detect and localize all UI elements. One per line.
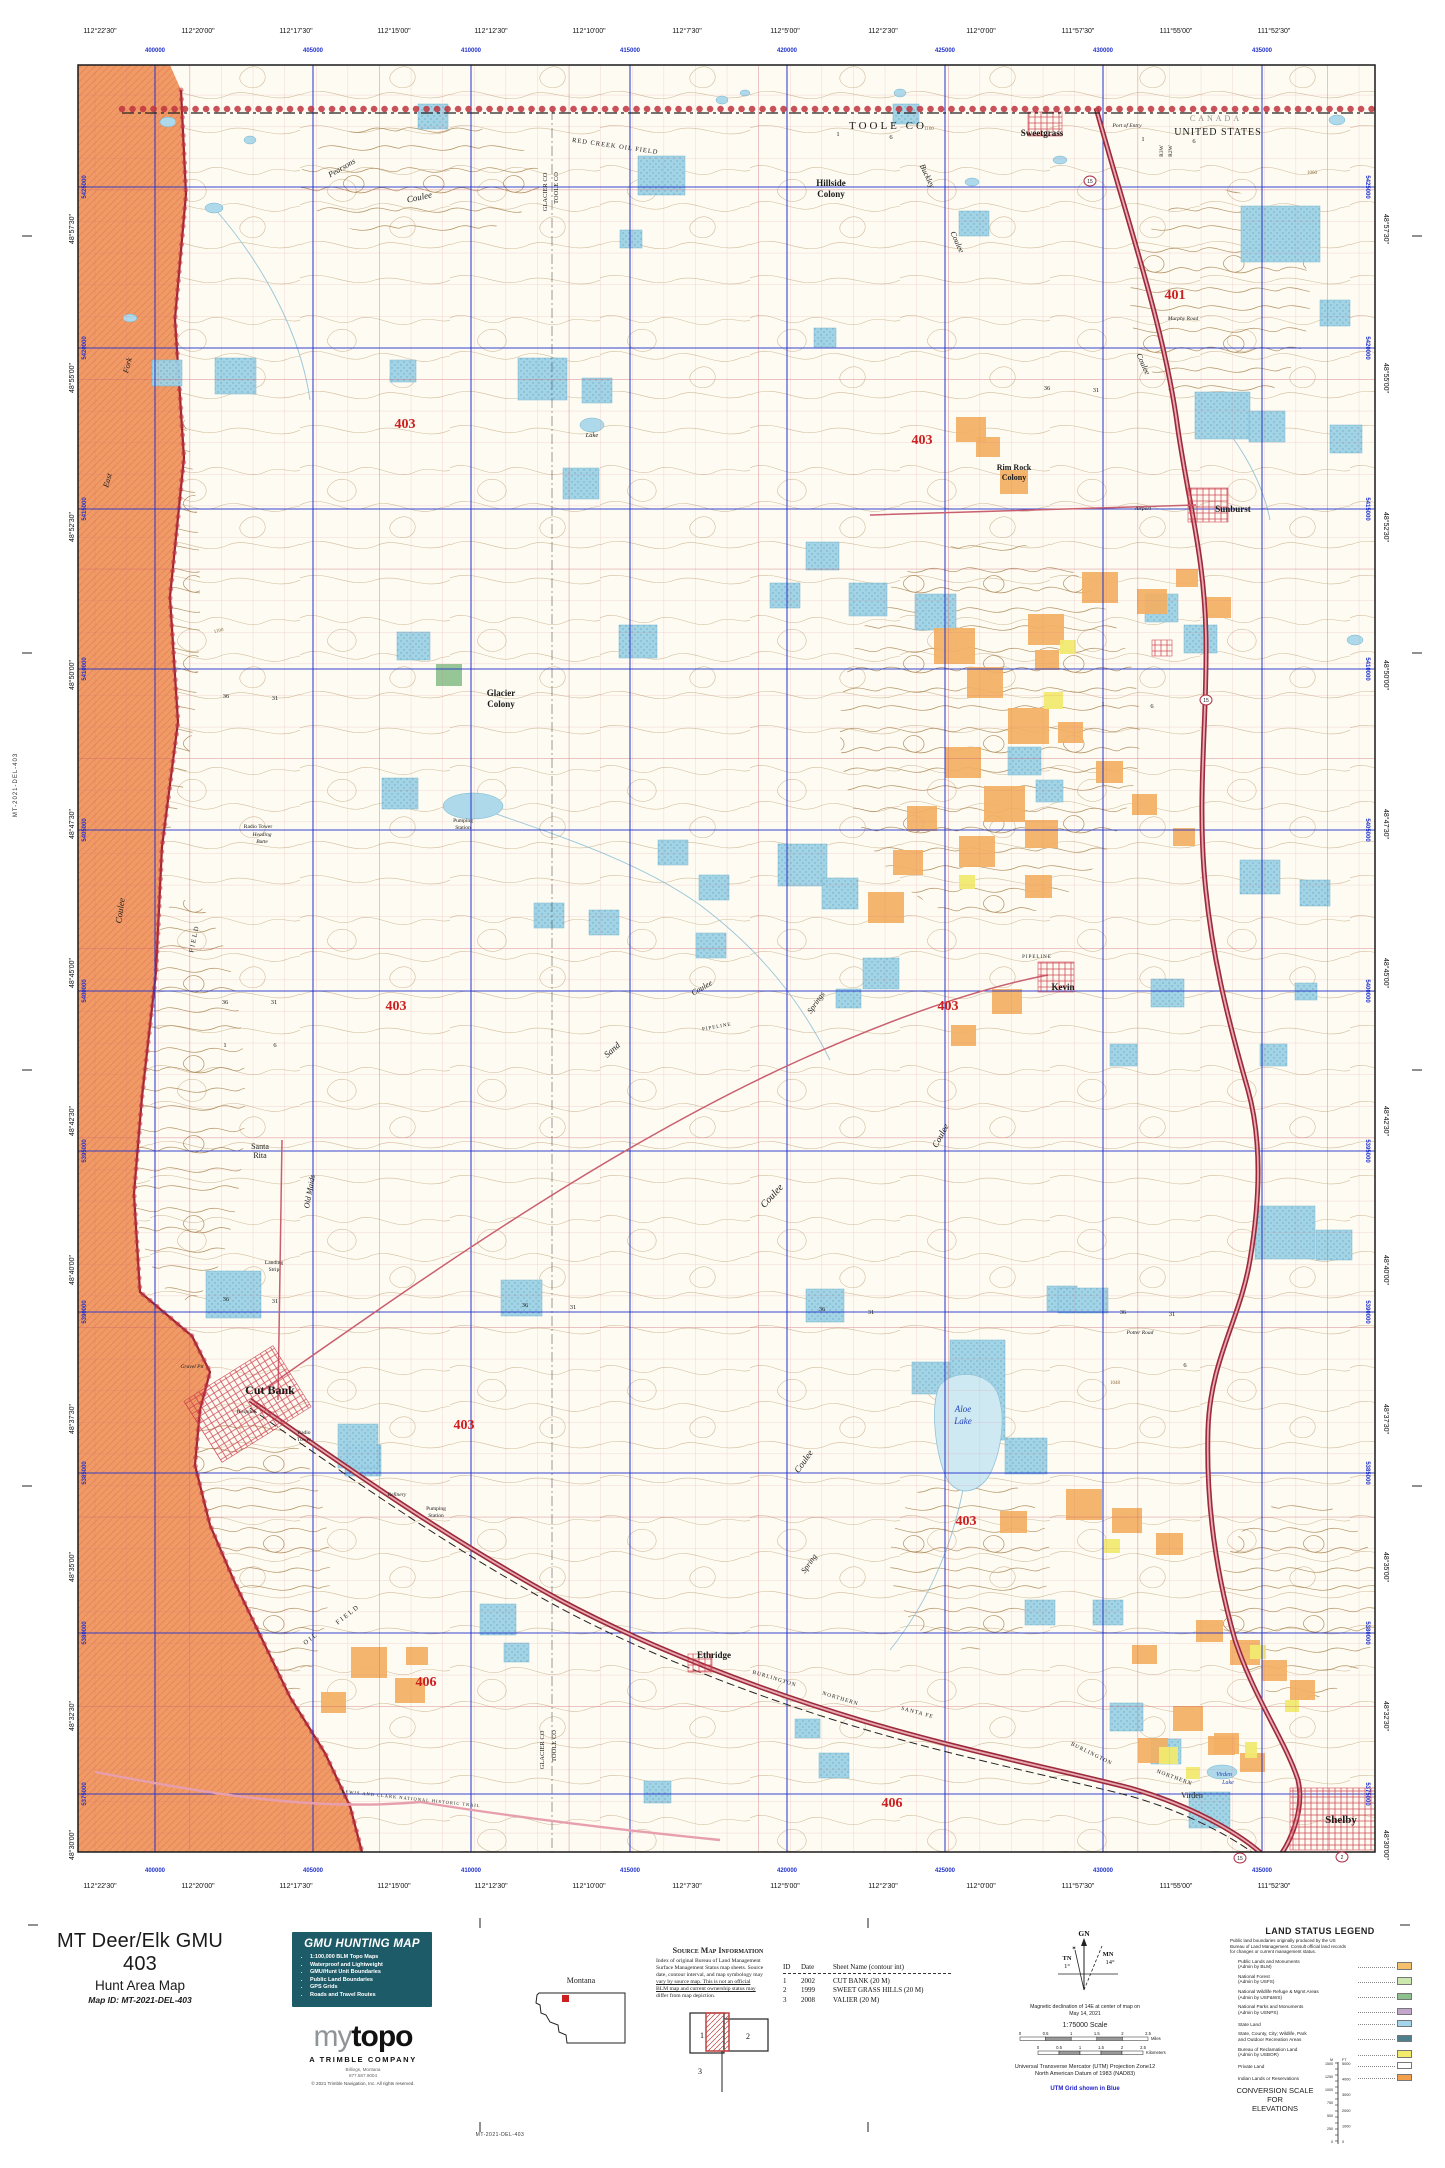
utm-northing-label-right: 5375000 [1364, 1782, 1370, 1806]
svg-text:GN: GN [1078, 1929, 1090, 1938]
sheet-table-row: 12002CUT BANK (20 M) [783, 1977, 951, 1987]
map-label: 1100 [924, 127, 934, 132]
latitude-label-right: 48°47'30" [1382, 809, 1390, 839]
elevation-conversion-ruler: 1500125010007505002500500040003000200010… [1316, 2058, 1370, 2150]
latitude-label-right: 48°30'00" [1382, 1830, 1390, 1860]
utm-northing-label-left: 5415000 [82, 497, 88, 521]
km-bar-tick: 1 [1079, 2045, 1082, 2050]
map-label: 1 [1101, 701, 1104, 708]
gmu-panel-heading: GMU HUNTING MAP [300, 1938, 424, 1950]
longitude-label-bottom: 112°0'00" [966, 1882, 996, 1890]
utm-northing-label-left: 5395000 [82, 1139, 88, 1163]
source-info-heading: Source Map Information [656, 1946, 780, 1955]
map-label: Rim Rock [997, 463, 1032, 472]
montana-inset: Montana [531, 1976, 631, 2052]
latitude-label-right: 48°40'00" [1382, 1255, 1390, 1285]
township-grid [78, 65, 1375, 1852]
map-label: Potter Road [1126, 1330, 1154, 1336]
conversion-left-label: 750 [1327, 2101, 1333, 2105]
map-label: Airport [1134, 506, 1152, 512]
map-label: Sunburst [1215, 504, 1251, 514]
map-label: Station [455, 825, 471, 831]
km-bar-tick: 2 [1121, 2045, 1124, 2050]
highway-shield-icon: 15 [1200, 695, 1212, 705]
map-label: R3W [1159, 144, 1165, 156]
svg-text:2: 2 [746, 2032, 750, 2041]
map-label: TOOLE CO [551, 1730, 558, 1762]
longitude-label-top: 112°20'00" [181, 27, 215, 35]
latitude-label-right: 48°50'00" [1382, 660, 1390, 690]
gmu-unit-number: 403 [395, 417, 416, 432]
longitude-label-bottom: 112°20'00" [181, 1882, 215, 1890]
sheet-table-col-id: ID [783, 1963, 801, 1973]
latitude-label-left: 48°45'00" [68, 957, 76, 987]
map-label: Glacier [487, 688, 516, 698]
longitude-label-bottom: 112°2'30" [868, 1882, 898, 1890]
source-info-line: Surface Management Status map sheets. So… [656, 1965, 780, 1972]
map-label: Cut Bank [245, 1383, 295, 1397]
conversion-left-unit: M [1330, 2058, 1333, 2062]
legend-item-label: State, County, City; Wildlife, Parkand O… [1238, 2031, 1356, 2042]
map-label: Lake [1221, 1780, 1234, 1786]
map-label: Station [428, 1513, 444, 1519]
utm-easting-label-top: 405000 [303, 48, 324, 54]
map-label: Radio Tower [244, 824, 273, 830]
longitude-label-bottom: 112°7'30" [672, 1882, 702, 1890]
utm-easting-label-bottom: 415000 [620, 1868, 641, 1874]
map-label: PIPELINE [1022, 955, 1052, 960]
map-label: TOOLE CO [849, 120, 927, 132]
conversion-left-label: 250 [1327, 2127, 1333, 2131]
title-block: MT Deer/Elk GMU 403 Hunt Area Map Map ID… [45, 1930, 235, 2005]
page-title: MT Deer/Elk GMU 403 [45, 1930, 235, 1976]
map-label: Virden [1216, 1772, 1232, 1778]
legend-swatch [1397, 1993, 1412, 2001]
sheet-table-col-name: Sheet Name (contour int) [833, 1963, 951, 1973]
longitude-label-bottom: 111°52'30" [1258, 1882, 1291, 1890]
miles-bar-tick: 1 [1070, 2031, 1073, 2036]
utm-easting-label-bottom: 400000 [145, 1868, 166, 1874]
map-label: 36 [1044, 385, 1051, 392]
latitude-label-right: 48°35'00" [1382, 1552, 1390, 1582]
conversion-right-label: 0 [1342, 2140, 1344, 2144]
utm-northing-label-right: 5415000 [1364, 497, 1370, 521]
latitude-label-left: 48°30'00" [68, 1829, 76, 1859]
gmu-hunting-map-panel: GMU HUNTING MAP 1:100,000 BLM Topo MapsW… [292, 1932, 432, 2007]
map-label: Landing [265, 1260, 284, 1266]
latitude-label-left: 48°57'30" [68, 213, 76, 243]
map-label: CANADA [1190, 114, 1242, 123]
svg-text:2: 2 [1341, 1855, 1344, 1861]
map-label: 1 [223, 1042, 226, 1049]
logo-topo: topo [352, 2020, 413, 2053]
utm-grid-note: UTM Grid shown in Blue [1003, 2086, 1167, 2092]
map-label: 36 [223, 693, 230, 700]
sheet-table-row: 21999SWEET GRASS HILLS (20 M) [783, 1986, 951, 1996]
gmu-unit-number: 403 [956, 1514, 977, 1529]
legend-item: Bureau of Reclamation Land(Admin by USBO… [1238, 2047, 1412, 2058]
map-label: 31 [570, 1304, 577, 1311]
latitude-label-left: 48°52'30" [68, 511, 76, 541]
declination-compass-icon: ✶ GN TN 1° MN 14° [1040, 1928, 1135, 2006]
map-label: 31 [868, 1309, 875, 1316]
conversion-right-label: 1000 [1342, 2124, 1350, 2128]
legend-swatch [1397, 1962, 1412, 1970]
utm-northing-label-left: 5410000 [82, 657, 88, 681]
gmu-panel-bullet-list: 1:100,000 BLM Topo MapsWaterproof and Li… [300, 1954, 424, 2000]
utm-northing-label-left: 5380000 [82, 1621, 88, 1645]
legend-item-label: Public Lands and Monuments(Admin by BLM) [1238, 1959, 1356, 1970]
longitude-label-top: 112°15'00" [377, 27, 411, 35]
legend-item: State Land [1238, 2020, 1412, 2028]
gmu-unit-number: 403 [938, 999, 959, 1014]
map-label: Colony [1002, 473, 1026, 482]
legend-item-label: National Parks and Monuments(Admin by US… [1238, 2004, 1356, 2015]
svg-text:✶: ✶ [1071, 1945, 1076, 1952]
map-label: 31 [272, 695, 279, 702]
latitude-label-left: 48°50'00" [68, 659, 76, 689]
svg-text:1: 1 [700, 2031, 704, 2040]
map-label: Radio [297, 1430, 310, 1436]
mytopo-copyright: © 2021 Trimble Navigation, Inc. All righ… [288, 2081, 438, 2086]
map-label: Gravel Pit [180, 1364, 204, 1370]
gmu-panel-bullet: GPS Grids [310, 1984, 424, 1992]
utm-northing-label-right: 5390000 [1364, 1300, 1370, 1324]
map-label: Shelby [1325, 1814, 1357, 1826]
km-bar-segment [1038, 2051, 1059, 2055]
map-label: 31 [1169, 1311, 1176, 1318]
map-label: 36 [222, 999, 229, 1006]
side-map-id: MT-2021-DEL-403 [13, 753, 19, 817]
longitude-label-top: 112°10'00" [572, 27, 606, 35]
map-label: Colony [487, 699, 515, 709]
highway-shield-icon: 2 [1336, 1852, 1348, 1862]
map-label: Tower [297, 1437, 311, 1443]
source-info-line: differ from map depiction. [656, 1993, 780, 2000]
source-info-line: vary by source map. This is not an offic… [656, 1979, 780, 1986]
utm-northing-label-left: 5385000 [82, 1461, 88, 1485]
source-info-text: Index of original Bureau of Land Managem… [656, 1958, 780, 2001]
sheet-table-header: IDDateSheet Name (contour int) [783, 1963, 951, 1974]
utm-northing-label-right: 5425000 [1364, 175, 1370, 199]
miles-bar-unit: Miles [1151, 2036, 1161, 2041]
legend-item: National Forest(Admin by USFS) [1238, 1974, 1412, 1985]
map-label: 1060 [1307, 171, 1318, 176]
longitude-label-bottom: 112°12'30" [474, 1882, 508, 1890]
utm-easting-label-bottom: 420000 [777, 1868, 798, 1874]
highway-shield-icon: 15 [1084, 176, 1096, 186]
map-label: 1 [1141, 136, 1144, 143]
gmu-unit-number: 403 [454, 1418, 475, 1433]
map-label: Lake [953, 1416, 972, 1426]
map-label: Santa [251, 1142, 269, 1151]
map-label: 1 [836, 131, 839, 138]
utm-northing-label-left: 5400000 [82, 979, 88, 1003]
longitude-label-top: 111°52'30" [1258, 27, 1291, 35]
map-sheet-page: TOOLE COCANADAUNITED STATESSweetgrassPor… [0, 0, 1445, 2168]
mytopo-logo: mytopo [288, 2022, 438, 2052]
svg-text:15: 15 [1237, 1856, 1243, 1862]
legend-swatch [1397, 2035, 1412, 2043]
utm-easting-label-bottom: 405000 [303, 1868, 324, 1874]
legend-swatch [1397, 1977, 1412, 1985]
utm-easting-label-top: 425000 [935, 48, 956, 54]
scale-bars: 00.511.522.5Miles 00.511.522.5Kilometers [1012, 2030, 1177, 2060]
km-bar-segment [1059, 2051, 1080, 2055]
utm-easting-label-bottom: 430000 [1093, 1868, 1114, 1874]
latitude-label-right: 48°32'30" [1382, 1701, 1390, 1731]
latitude-label-left: 48°47'30" [68, 808, 76, 838]
latitude-label-left: 48°37'30" [68, 1403, 76, 1433]
legend-item: National Parks and Monuments(Admin by US… [1238, 2004, 1412, 2015]
map-label: GLACIER CO [539, 1730, 546, 1769]
utm-northing-label-left: 5375000 [82, 1782, 88, 1806]
conversion-left-label: 1000 [1325, 2088, 1333, 2092]
conversion-left-label: 1250 [1325, 2075, 1333, 2079]
utm-northing-label-right: 5380000 [1364, 1621, 1370, 1645]
miles-bar-tick: 2 [1121, 2031, 1124, 2036]
latitude-label-right: 48°57'30" [1382, 214, 1390, 244]
gmu-panel-bullet: Public Land Boundaries [310, 1977, 424, 1985]
map-label: 31 [1093, 387, 1100, 394]
longitude-label-top: 112°12'30" [474, 27, 508, 35]
latitude-label-right: 48°42'30" [1382, 1106, 1390, 1136]
map-canvas: TOOLE COCANADAUNITED STATESSweetgrassPor… [0, 0, 1445, 2168]
conversion-scale-heading: CONVERSION SCALE FOR ELEVATIONS [1232, 2086, 1318, 2113]
map-id-label: Map ID: MT-2021-DEL-403 [45, 1995, 235, 2005]
map-label: Pumping [453, 818, 473, 824]
map-label: 36 [522, 1302, 529, 1309]
legend-leader [1358, 1981, 1395, 1983]
latitude-label-right: 48°52'30" [1382, 512, 1390, 542]
map-label: UNITED STATES [1174, 127, 1261, 138]
utm-northing-label-left: 5420000 [82, 336, 88, 360]
utm-northing-label-left: 5390000 [82, 1300, 88, 1324]
map-label: Lake [585, 432, 599, 439]
map-label: Rita [253, 1151, 267, 1160]
utm-northing-label-right: 5420000 [1364, 336, 1370, 360]
longitude-label-top: 111°57'30" [1062, 27, 1095, 35]
legend-intro: Public land boundaries originally produc… [1230, 1938, 1412, 1955]
conversion-left-label: 1500 [1325, 2062, 1333, 2066]
map-label: Pumping [426, 1506, 446, 1512]
utm-northing-label-left: 5425000 [82, 175, 88, 199]
map-label: R2W [1168, 144, 1174, 156]
svg-text:15: 15 [1203, 698, 1209, 704]
conversion-right-label: 2000 [1342, 2109, 1350, 2113]
trimble-tagline: A TRIMBLE COMPANY [288, 2055, 438, 2064]
map-label: TOOLE CO [553, 172, 560, 204]
miles-bar-segment [1122, 2037, 1148, 2041]
montana-label: Montana [531, 1976, 631, 1985]
legend-item-label: National Wildlife Refuge & Mgmt Areas(Ad… [1238, 1989, 1356, 2000]
latitude-label-left: 48°35'00" [68, 1551, 76, 1581]
legend-item-label: State Land [1238, 2022, 1356, 2027]
utm-northing-label-right: 5400000 [1364, 979, 1370, 1003]
longitude-label-bottom: 112°15'00" [377, 1882, 411, 1890]
conversion-right-label: 5000 [1342, 2062, 1350, 2066]
map-label: Heading [252, 832, 272, 838]
mytopo-address: Billings, Montana877.587.9004 [288, 2067, 438, 2079]
gmu-unit-number: 403 [912, 433, 933, 448]
town-street-grid [1152, 640, 1172, 656]
map-label: Kevin [1051, 982, 1074, 992]
legend-leader [1358, 1966, 1395, 1968]
longitude-label-top: 112°0'00" [966, 27, 996, 35]
legend-item: National Wildlife Refuge & Mgmt Areas(Ad… [1238, 1989, 1412, 2000]
gmu-unit-number: 406 [416, 1675, 437, 1690]
mytopo-logo-block: mytopo A TRIMBLE COMPANY Billings, Monta… [288, 2022, 438, 2086]
map-label: 36 [1120, 1309, 1127, 1316]
map-label: Refinery [387, 1491, 407, 1498]
latitude-label-left: 48°32'30" [68, 1700, 76, 1730]
latitude-label-right: 48°37'30" [1382, 1404, 1390, 1434]
map-label: 31 [271, 999, 278, 1006]
map-label: Port of Entry [1111, 122, 1142, 129]
legend-leader [1358, 1996, 1395, 1998]
highway-shield-icon: 15 [1234, 1853, 1246, 1863]
km-bar-unit: Kilometers [1146, 2050, 1166, 2055]
map-label: 36 [223, 1296, 230, 1303]
utm-northing-label-right: 5395000 [1364, 1139, 1370, 1163]
longitude-label-top: 112°7'30" [672, 27, 702, 35]
map-label: GLACIER CO [542, 172, 549, 211]
latitude-label-left: 48°55'00" [68, 362, 76, 392]
sheet-table-col-date: Date [801, 1963, 833, 1973]
longitude-label-bottom: 112°17'30" [279, 1882, 313, 1890]
legend-leader [1358, 2054, 1395, 2056]
utm-easting-label-top: 410000 [461, 48, 482, 54]
svg-text:TN: TN [1062, 1955, 1071, 1962]
gmu-unit-number: 403 [386, 999, 407, 1014]
svg-text:15: 15 [1087, 179, 1093, 185]
longitude-label-top: 112°2'30" [868, 27, 898, 35]
longitude-label-bottom: 111°57'30" [1062, 1882, 1095, 1890]
legend-item-label: Bureau of Reclamation Land(Admin by USBO… [1238, 2047, 1356, 2058]
map-label: 1048 [1110, 1381, 1121, 1386]
sheet-table: IDDateSheet Name (contour int) 12002CUT … [783, 1963, 951, 2005]
miles-bar-tick: 0 [1019, 2031, 1022, 2036]
map-label: Colony [817, 189, 845, 199]
km-bar-tick: 0 [1037, 2045, 1040, 2050]
map-label: Aloe [954, 1404, 972, 1414]
km-bar-tick: 0.5 [1056, 2045, 1062, 2050]
sheet-index-diagram: 1 2 3 [676, 2008, 796, 2096]
sheet-table-row: 32008VALIER (20 M) [783, 1996, 951, 2006]
legend-intro-line: for changes or current management status… [1230, 1949, 1412, 1955]
gmu-panel-bullet: GMU/Hunt Unit Boundaries [310, 1969, 424, 1977]
longitude-label-top: 112°17'30" [279, 27, 313, 35]
map-label: Strip [269, 1267, 280, 1273]
miles-bar-tick: 1.5 [1094, 2031, 1100, 2036]
utm-easting-label-top: 430000 [1093, 48, 1114, 54]
km-bar-segment [1080, 2051, 1101, 2055]
projection-note: Universal Transverse Mercator (UTM) Proj… [1003, 2064, 1167, 2078]
map-label: Murphy Road [1167, 316, 1199, 322]
latitude-label-left: 48°40'00" [68, 1254, 76, 1284]
legend-swatch [1397, 2050, 1412, 2058]
map-label: Sweetgrass [1021, 128, 1064, 138]
longitude-label-bottom: 112°5'00" [770, 1882, 800, 1890]
svg-text:14°: 14° [1105, 1959, 1115, 1966]
utm-easting-label-top: 435000 [1252, 48, 1273, 54]
latitude-label-right: 48°55'00" [1382, 363, 1390, 393]
map-label: Virden [1181, 1791, 1203, 1800]
gmu-panel-bullet: Waterproof and Lightweight [310, 1962, 424, 1970]
svg-text:3: 3 [698, 2067, 702, 2076]
legend-item: State, County, City; Wildlife, Parkand O… [1238, 2031, 1412, 2042]
map-label: 36 [819, 1306, 826, 1313]
latitude-label-right: 48°45'00" [1382, 958, 1390, 988]
conversion-left-label: 0 [1331, 2140, 1333, 2144]
map-label: Hillside [816, 178, 846, 188]
latitude-label-left: 48°42'30" [68, 1105, 76, 1135]
legend-item-label: National Forest(Admin by USFS) [1238, 1974, 1356, 1985]
legend-swatch [1397, 2020, 1412, 2028]
legend-leader [1358, 2038, 1395, 2040]
source-map-information: Source Map Information Index of original… [656, 1946, 780, 2001]
gmu-panel-bullet: Roads and Travel Routes [310, 1992, 424, 2000]
page-subtitle: Hunt Area Map [45, 1978, 235, 1993]
legend-swatch [1397, 2074, 1412, 2082]
miles-bar-segment [1097, 2037, 1123, 2041]
scale-heading: 1:75000 Scale [1003, 2022, 1167, 2029]
legend-leader [1358, 2011, 1395, 2013]
conversion-right-label: 4000 [1342, 2078, 1350, 2082]
utm-northing-label-right: 5385000 [1364, 1461, 1370, 1485]
map-label: 31 [272, 1298, 279, 1305]
declination-note: Magnetic declination of 14E at center of… [1003, 2004, 1167, 2017]
utm-northing-label-left: 5405000 [82, 818, 88, 842]
utm-northing-label-right: 5405000 [1364, 818, 1370, 842]
bottom-map-id: MT-2021-DEL-403 [455, 2132, 545, 2138]
utm-easting-label-top: 415000 [620, 48, 641, 54]
svg-text:MN: MN [1103, 1951, 1114, 1958]
legend-swatch [1397, 2062, 1412, 2070]
km-bar-segment [1122, 2051, 1143, 2055]
gmu-panel-bullet: 1:100,000 BLM Topo Maps [310, 1954, 424, 1962]
utm-easting-label-bottom: 425000 [935, 1868, 956, 1874]
utm-northing-label-right: 5410000 [1364, 657, 1370, 681]
longitude-label-top: 112°22'30" [83, 27, 117, 35]
map-label: Hospital [236, 1409, 256, 1415]
longitude-label-top: 112°5'00" [770, 27, 800, 35]
legend-swatch [1397, 2008, 1412, 2016]
gmu-unit-number: 401 [1165, 288, 1186, 303]
km-bar-tick: 1.5 [1098, 2045, 1104, 2050]
longitude-label-top: 111°55'00" [1160, 27, 1193, 35]
conversion-left-label: 500 [1327, 2114, 1333, 2118]
logo-my: my [314, 2020, 352, 2053]
legend-leader [1358, 2023, 1395, 2025]
legend-item: Public Lands and Monuments(Admin by BLM) [1238, 1959, 1412, 1970]
utm-easting-label-top: 400000 [145, 48, 166, 54]
map-label: Ethridge [697, 1650, 731, 1660]
legend-heading: LAND STATUS LEGEND [1228, 1926, 1412, 1936]
longitude-label-bottom: 111°55'00" [1160, 1882, 1193, 1890]
utm-easting-label-top: 420000 [777, 48, 798, 54]
miles-bar-segment [1071, 2037, 1097, 2041]
montana-outline [533, 1989, 629, 2047]
longitude-label-bottom: 112°22'30" [83, 1882, 117, 1890]
miles-bar-tick: 0.5 [1043, 2031, 1049, 2036]
gmu-unit-number: 406 [882, 1796, 903, 1811]
km-bar-segment [1101, 2051, 1122, 2055]
longitude-label-bottom: 112°10'00" [572, 1882, 606, 1890]
map-label: Butte [256, 839, 268, 845]
utm-easting-label-bottom: 410000 [461, 1868, 482, 1874]
conversion-right-label: 3000 [1342, 2093, 1350, 2097]
